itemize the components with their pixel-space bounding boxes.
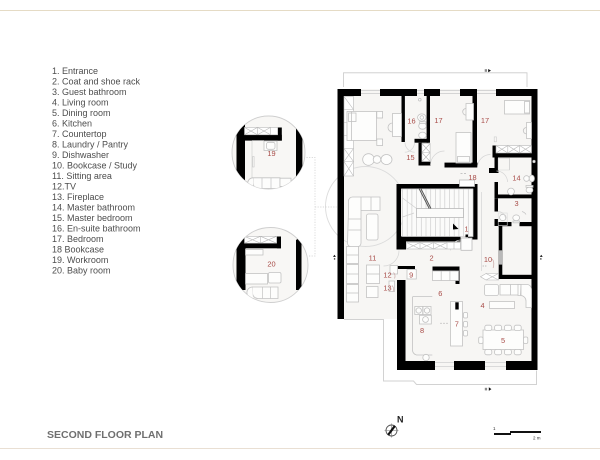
svg-text:9. Dishwasher: 9. Dishwasher — [52, 150, 109, 160]
svg-text:13. Fireplace: 13. Fireplace — [52, 192, 104, 202]
svg-text:20. Baby room: 20. Baby room — [52, 266, 111, 276]
svg-text:17: 17 — [434, 116, 442, 125]
svg-text:6. Kitchen: 6. Kitchen — [52, 119, 92, 129]
svg-text:17: 17 — [481, 116, 489, 125]
svg-text:2. Coat and shoe rack: 2. Coat and shoe rack — [52, 77, 141, 87]
svg-text:8. Laundry / Pantry: 8. Laundry / Pantry — [52, 140, 129, 150]
svg-text:17. Bedroom: 17. Bedroom — [52, 234, 104, 244]
svg-text:7. Countertop: 7. Countertop — [52, 129, 107, 139]
svg-text:2: 2 — [429, 254, 433, 263]
svg-text:12: 12 — [383, 271, 391, 280]
svg-text:8: 8 — [420, 326, 424, 335]
svg-text:1. Entrance: 1. Entrance — [52, 66, 98, 76]
svg-text:19. Workroom: 19. Workroom — [52, 255, 108, 265]
svg-text:14. Master bathroom: 14. Master bathroom — [52, 203, 135, 213]
svg-text:13: 13 — [383, 284, 391, 293]
svg-text:10: 10 — [484, 255, 492, 264]
svg-text:N: N — [397, 415, 404, 425]
svg-text:3: 3 — [514, 199, 518, 208]
svg-text:18: 18 — [468, 173, 476, 182]
svg-text:4: 4 — [480, 301, 484, 310]
svg-text:5: 5 — [501, 336, 505, 345]
svg-text:4. Living room: 4. Living room — [52, 98, 109, 108]
svg-text:15. Master bedroom: 15. Master bedroom — [52, 213, 133, 223]
svg-text:3. Guest bathroom: 3. Guest bathroom — [52, 87, 127, 97]
svg-text:11: 11 — [369, 254, 377, 263]
svg-text:18 Bookcase: 18 Bookcase — [52, 245, 104, 255]
svg-text:11. Sitting area: 11. Sitting area — [52, 171, 112, 181]
svg-text:19: 19 — [267, 149, 275, 158]
svg-text:2 m: 2 m — [533, 436, 541, 441]
svg-text:15: 15 — [406, 153, 414, 162]
svg-text:14: 14 — [512, 174, 520, 183]
svg-text:10. Bookcase / Study: 10. Bookcase / Study — [52, 161, 138, 171]
svg-text:12.TV: 12.TV — [52, 182, 76, 192]
svg-text:20: 20 — [267, 260, 275, 269]
svg-text:SECOND FLOOR PLAN: SECOND FLOOR PLAN — [47, 429, 163, 441]
svg-text:1: 1 — [464, 225, 468, 234]
svg-text:6: 6 — [438, 289, 442, 298]
svg-text:5. Dining room: 5. Dining room — [52, 108, 111, 118]
svg-text:9: 9 — [409, 271, 413, 280]
svg-text:16: 16 — [407, 117, 415, 126]
svg-text:16. En-suite bathroom: 16. En-suite bathroom — [52, 224, 141, 234]
svg-text:7: 7 — [455, 320, 459, 329]
